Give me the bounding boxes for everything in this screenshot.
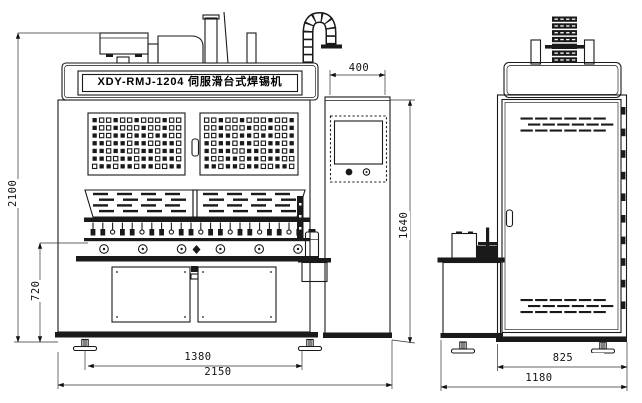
dim-825-label: 825 — [522, 353, 604, 364]
outfeed-extension — [438, 228, 505, 339]
front-top-equipment — [100, 12, 342, 63]
flex-hose-icon — [308, 18, 342, 64]
dim-2150-label: 2150 — [177, 367, 259, 378]
dim-1640-label: 1640 — [399, 211, 410, 240]
drawing-linework — [0, 0, 642, 403]
dim-1180-label: 1180 — [498, 373, 580, 384]
front-feet — [74, 340, 322, 351]
perforation-holes — [93, 118, 294, 169]
cabinet-door-left — [112, 267, 190, 322]
outfeed-device — [452, 234, 477, 259]
panel-handle — [192, 139, 199, 156]
lower-rail — [84, 238, 310, 241]
technical-drawing-canvas: XDY-RMJ-1204 伺服滑台式焊锡机 2100 720 400 1640 … — [0, 0, 642, 403]
feeder-attachment — [117, 57, 129, 63]
dim-400-label: 400 — [338, 63, 380, 74]
cabinet-door-right — [198, 267, 276, 322]
exhaust-pipe — [205, 18, 217, 63]
top-bonnet — [504, 63, 621, 98]
dim-2100-label: 2100 — [8, 179, 19, 208]
side-tank-assembly — [297, 196, 331, 282]
flex-hose-end-icon — [552, 17, 577, 63]
machine-nameplate-text: XDY-RMJ-1204 伺服滑台式焊锡机 — [80, 73, 300, 92]
front-body — [55, 100, 322, 351]
control-panel — [323, 97, 392, 338]
side-feet — [452, 342, 615, 353]
upper-rail — [84, 218, 310, 223]
base-frame — [55, 332, 318, 338]
fixture-row — [91, 223, 302, 236]
hood-louvers — [93, 193, 296, 212]
start-button[interactable] — [346, 169, 353, 176]
door-handle[interactable] — [507, 210, 513, 227]
hmi-mount-plate — [331, 116, 387, 182]
roller-row — [100, 245, 303, 254]
tank-icon — [306, 232, 319, 258]
dim-720-label: 720 — [31, 280, 42, 302]
work-table — [76, 256, 319, 262]
side-vents — [521, 118, 614, 314]
dim-1380-label: 1380 — [157, 352, 239, 363]
hmi-screen[interactable] — [335, 121, 383, 164]
side-door — [502, 100, 621, 333]
side-view — [438, 17, 628, 354]
